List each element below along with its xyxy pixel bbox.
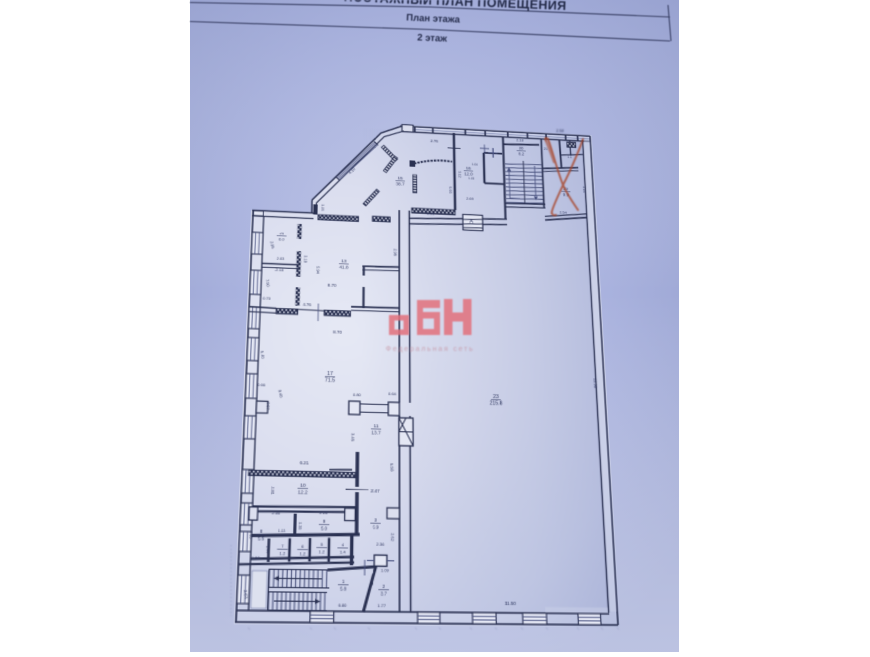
svg-text:2.58: 2.58 xyxy=(556,128,565,133)
svg-text:Федеральная сеть: Федеральная сеть xyxy=(386,344,475,353)
